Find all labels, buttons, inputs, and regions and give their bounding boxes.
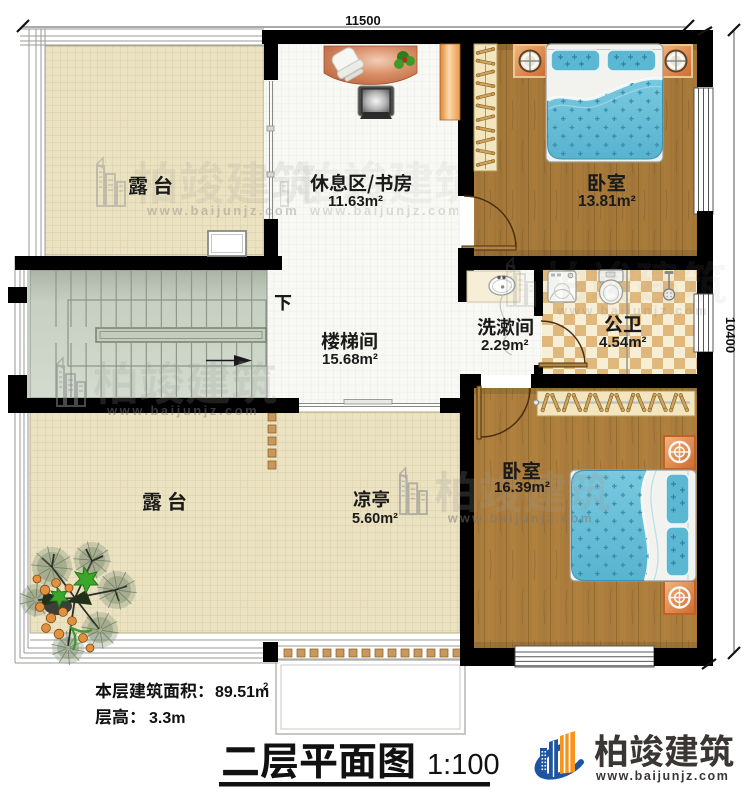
svg-text:13.81m²: 13.81m² — [578, 193, 636, 210]
svg-text:5.60m²: 5.60m² — [352, 511, 398, 527]
svg-text:3.3m: 3.3m — [149, 710, 185, 727]
svg-text:15.68m²: 15.68m² — [322, 351, 378, 368]
svg-text:89.51m: 89.51m — [215, 684, 269, 701]
svg-text:2.29m²: 2.29m² — [481, 337, 529, 354]
svg-text:www.baijunjz.com: www.baijunjz.com — [146, 203, 299, 218]
svg-text:2: 2 — [263, 681, 268, 692]
svg-text:4.54m²: 4.54m² — [599, 334, 647, 351]
svg-text:www.baijunjz.com: www.baijunjz.com — [447, 512, 594, 526]
svg-text:16.39m²: 16.39m² — [494, 479, 550, 496]
svg-text:www.baijunjz.com: www.baijunjz.com — [556, 303, 709, 318]
svg-text:1:100: 1:100 — [427, 749, 500, 781]
svg-text:www.baijunjz.com: www.baijunjz.com — [595, 769, 729, 783]
svg-text:10400: 10400 — [723, 317, 738, 353]
svg-text:www.baijunjz.com: www.baijunjz.com — [106, 403, 259, 418]
svg-text:11500: 11500 — [345, 13, 380, 28]
svg-text:11.63m²: 11.63m² — [328, 193, 383, 210]
